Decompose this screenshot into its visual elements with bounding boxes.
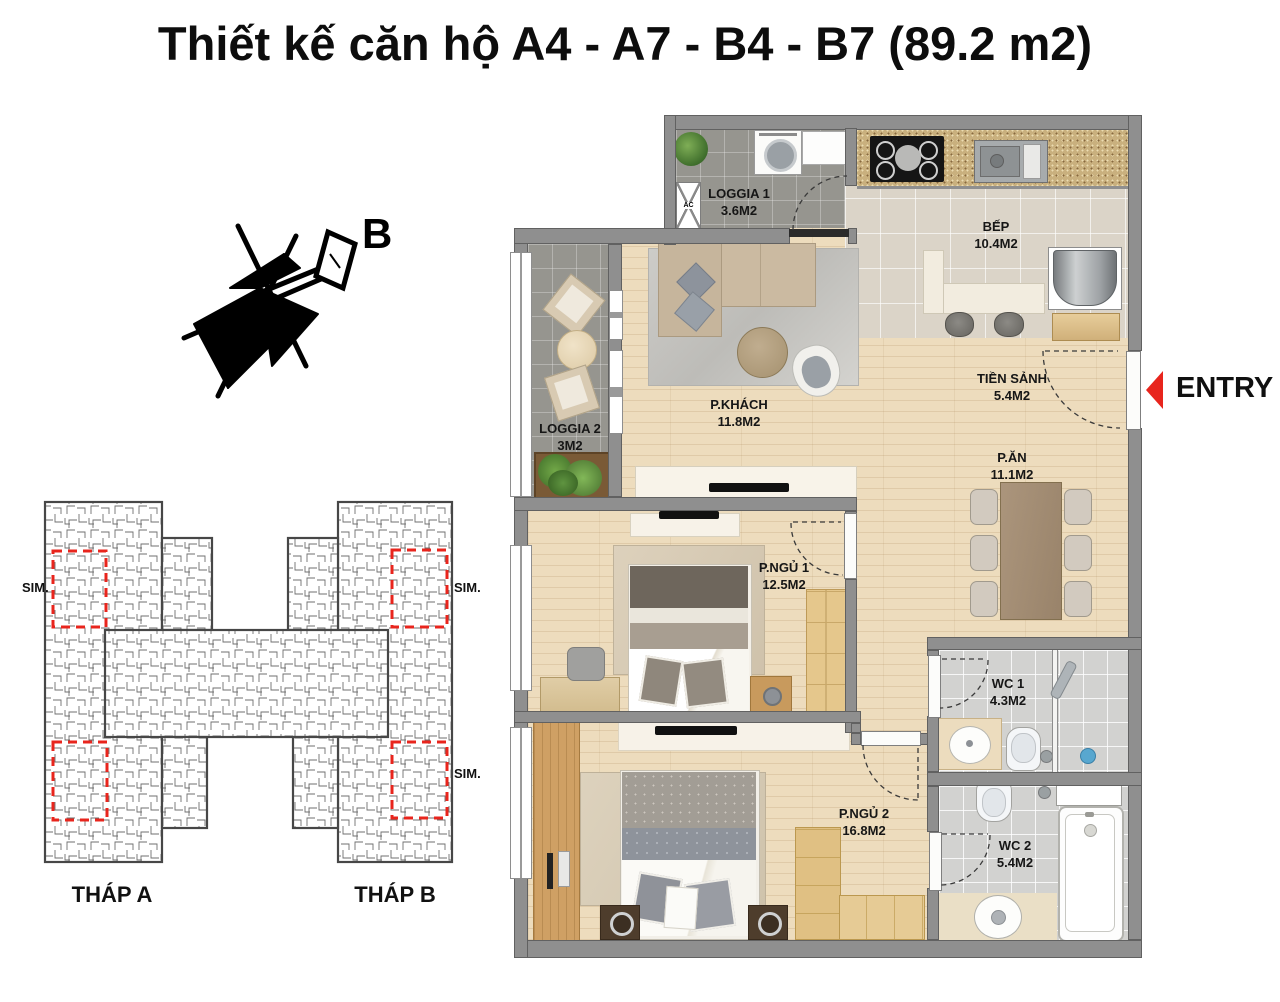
room-label-loggia1: LOGGIA 13.6M2 bbox=[708, 186, 770, 219]
window-loggia2-partition-b bbox=[609, 350, 623, 434]
room-label-pngu1: P.NGỦ 112.5M2 bbox=[759, 560, 809, 593]
wall-upper-stub bbox=[848, 228, 857, 244]
shower-glass-partition bbox=[1052, 650, 1058, 772]
wardrobe-bedroom2-horizontal bbox=[839, 895, 925, 940]
bathtub-drain bbox=[1084, 824, 1097, 837]
wall-top bbox=[664, 115, 1142, 130]
bathtub bbox=[1058, 806, 1124, 942]
wardrobe-bedroom1 bbox=[806, 589, 848, 716]
plant-icon bbox=[674, 132, 708, 166]
wall-right-lower bbox=[1128, 428, 1142, 940]
wall-bedroom1-bottom bbox=[514, 711, 861, 723]
tv-console-bedroom2 bbox=[618, 722, 850, 751]
north-arrow-compass-icon: B bbox=[172, 196, 396, 410]
window-loggia2-partition-a bbox=[609, 290, 623, 340]
sim-label-right-bottom: SIM. bbox=[454, 766, 481, 781]
cooktop bbox=[870, 136, 944, 182]
nightstand-bedroom2 bbox=[600, 905, 640, 940]
wc1-sink-counter bbox=[938, 718, 1002, 770]
wc2-sink bbox=[974, 895, 1022, 939]
fridge bbox=[1053, 250, 1117, 306]
floor-drain bbox=[1038, 786, 1051, 799]
tv-bedroom1 bbox=[659, 511, 719, 519]
loggia-cabinet bbox=[802, 131, 848, 165]
wall-connector bbox=[851, 723, 861, 733]
dining-chair bbox=[1064, 535, 1092, 571]
entry-door-leaf bbox=[1126, 351, 1141, 430]
wall-bedroom2-top-a bbox=[851, 733, 861, 745]
bed1-pillow bbox=[681, 658, 728, 709]
dining-chair bbox=[1064, 581, 1092, 617]
floor-plan-page: Thiết kế căn hộ A4 - A7 - B4 - B7 (89.2 … bbox=[0, 0, 1280, 1002]
wall-bedroom1-right-b bbox=[845, 579, 857, 733]
room-label-pan: P.ĂN11.1M2 bbox=[991, 450, 1034, 483]
entry-arrow-icon bbox=[1146, 371, 1163, 409]
fridge-enclosure bbox=[1048, 247, 1122, 310]
bed2 bbox=[620, 770, 760, 940]
dining-chair bbox=[970, 489, 998, 525]
room-label-tiensanh: TIỀN SẢNH5.4M2 bbox=[977, 371, 1047, 404]
room-label-bep: BẾP10.4M2 bbox=[974, 219, 1017, 252]
wall-loggia1-left bbox=[664, 115, 676, 245]
bed1-pillow bbox=[639, 655, 684, 706]
hall-cabinet bbox=[1052, 313, 1120, 341]
wc1-toilet bbox=[1006, 727, 1041, 771]
dining-chair bbox=[1064, 489, 1092, 525]
kitchen-sink bbox=[974, 140, 1048, 183]
bed1 bbox=[628, 564, 752, 716]
nightstand-bedroom1 bbox=[750, 676, 792, 714]
compass-north-label: B bbox=[362, 210, 392, 257]
window-bedroom2 bbox=[510, 727, 532, 879]
tv-bedroom2 bbox=[655, 726, 737, 735]
room-label-pkhach: P.KHÁCH11.8M2 bbox=[710, 397, 768, 430]
room-label-wc1: WC 14.3M2 bbox=[990, 676, 1026, 709]
window-bedroom1 bbox=[510, 545, 532, 691]
wall-bottom bbox=[514, 940, 1142, 958]
sim-label-left: SIM. bbox=[22, 580, 49, 595]
bar-stool bbox=[945, 312, 974, 337]
key-plan-building-outline bbox=[5, 490, 505, 890]
tower-a-label: THÁP A bbox=[42, 882, 182, 908]
tv-console-bedroom1 bbox=[630, 513, 740, 537]
entry-label: ENTRY bbox=[1176, 372, 1273, 405]
ac-unit-label: AC bbox=[682, 202, 694, 209]
kitchen-island-wing bbox=[923, 250, 944, 314]
wall-loggia1-kitchen-divider bbox=[845, 128, 857, 186]
loggia1-sliding-door bbox=[789, 229, 849, 237]
bedroom2-wood-panel bbox=[533, 718, 580, 947]
tv-console-living bbox=[635, 466, 857, 499]
shower-drain bbox=[1080, 748, 1096, 764]
dining-table bbox=[1000, 482, 1062, 620]
ac-unit: AC bbox=[676, 182, 701, 229]
wall-wc2-left-a bbox=[927, 786, 939, 832]
wall-wc2-left-b bbox=[927, 888, 939, 940]
wall-right-upper bbox=[1128, 115, 1142, 351]
tv-living bbox=[709, 483, 789, 492]
wall-wc-divider bbox=[927, 772, 1142, 786]
room-label-pngu2: P.NGỦ 216.8M2 bbox=[839, 806, 889, 839]
wc2-toilet bbox=[976, 780, 1012, 822]
wall-upper-horizontal bbox=[514, 228, 790, 244]
sim-label-right-top: SIM. bbox=[454, 580, 481, 595]
room-label-wc2: WC 25.4M2 bbox=[997, 838, 1033, 871]
washing-machine bbox=[754, 130, 802, 175]
window-loggia2 bbox=[510, 252, 532, 497]
tower-b-label: THÁP B bbox=[325, 882, 465, 908]
coffee-table bbox=[737, 327, 788, 378]
page-title: Thiết kế căn hộ A4 - A7 - B4 - B7 (89.2 … bbox=[0, 16, 1250, 71]
room-label-loggia2: LOGGIA 23M2 bbox=[539, 421, 601, 454]
loggia-table bbox=[557, 330, 597, 370]
wardrobe-bedroom2-vertical bbox=[795, 827, 841, 940]
wc2-door-leaf bbox=[929, 832, 942, 891]
planter-box bbox=[534, 452, 612, 502]
desk-chair-bedroom1 bbox=[567, 647, 605, 681]
bedroom1-door-leaf bbox=[844, 513, 857, 579]
bed2-pillow bbox=[664, 886, 699, 930]
desk-bedroom1 bbox=[540, 677, 620, 714]
wall-living-bedroom1 bbox=[514, 497, 857, 511]
nightstand-bedroom2 bbox=[748, 905, 788, 940]
bedroom2-door-leaf bbox=[861, 731, 921, 746]
dining-chair bbox=[970, 581, 998, 617]
wc1-door-leaf bbox=[928, 655, 941, 718]
wall-wc1-top bbox=[927, 637, 1142, 650]
wall-wc1-left-b bbox=[927, 716, 939, 772]
bar-stool bbox=[994, 312, 1024, 337]
dining-chair bbox=[970, 535, 998, 571]
